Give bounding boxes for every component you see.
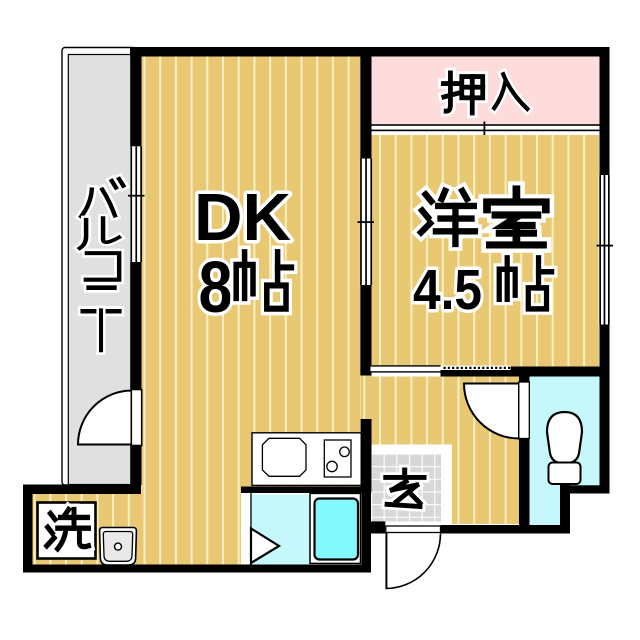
svg-text:8: 8 — [199, 248, 233, 328]
svg-text:4.5: 4.5 — [413, 258, 482, 322]
svg-text:DK: DK — [194, 180, 291, 255]
